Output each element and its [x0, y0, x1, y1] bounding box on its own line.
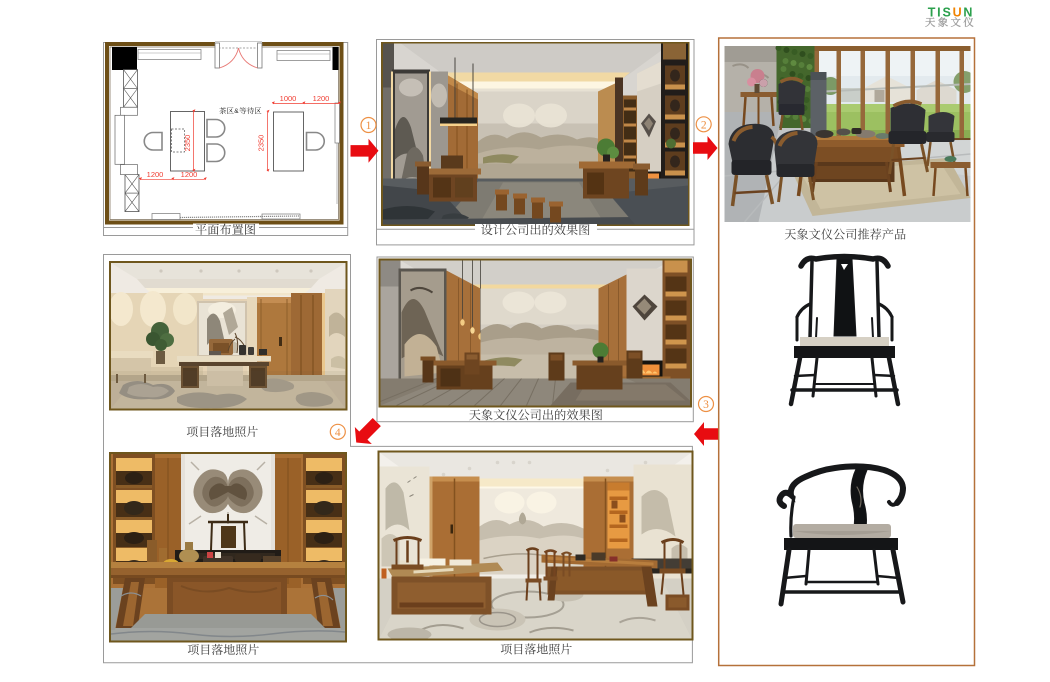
svg-text:1200: 1200 — [147, 170, 164, 179]
svg-text:3: 3 — [703, 399, 709, 411]
svg-text:1: 1 — [366, 120, 372, 132]
svg-text:2350: 2350 — [183, 135, 192, 152]
svg-text:2: 2 — [701, 119, 707, 131]
svg-text:&: & — [234, 108, 239, 115]
svg-text:4: 4 — [335, 427, 341, 439]
svg-text:1200: 1200 — [181, 170, 198, 179]
svg-text:1200: 1200 — [313, 94, 330, 103]
svg-text:2350: 2350 — [257, 135, 266, 152]
svg-text:1000: 1000 — [280, 94, 297, 103]
